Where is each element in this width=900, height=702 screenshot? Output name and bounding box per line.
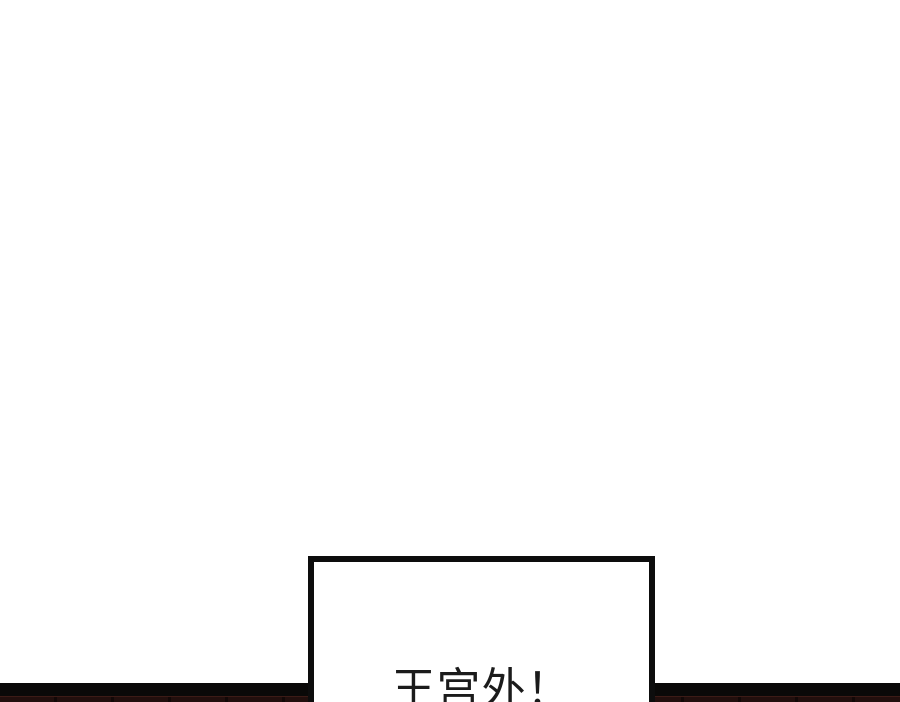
comic-page: 王宫外！ (0, 0, 900, 702)
caption-box: 王宫外！ (308, 556, 655, 702)
caption-text: 王宫外！ (314, 668, 649, 702)
